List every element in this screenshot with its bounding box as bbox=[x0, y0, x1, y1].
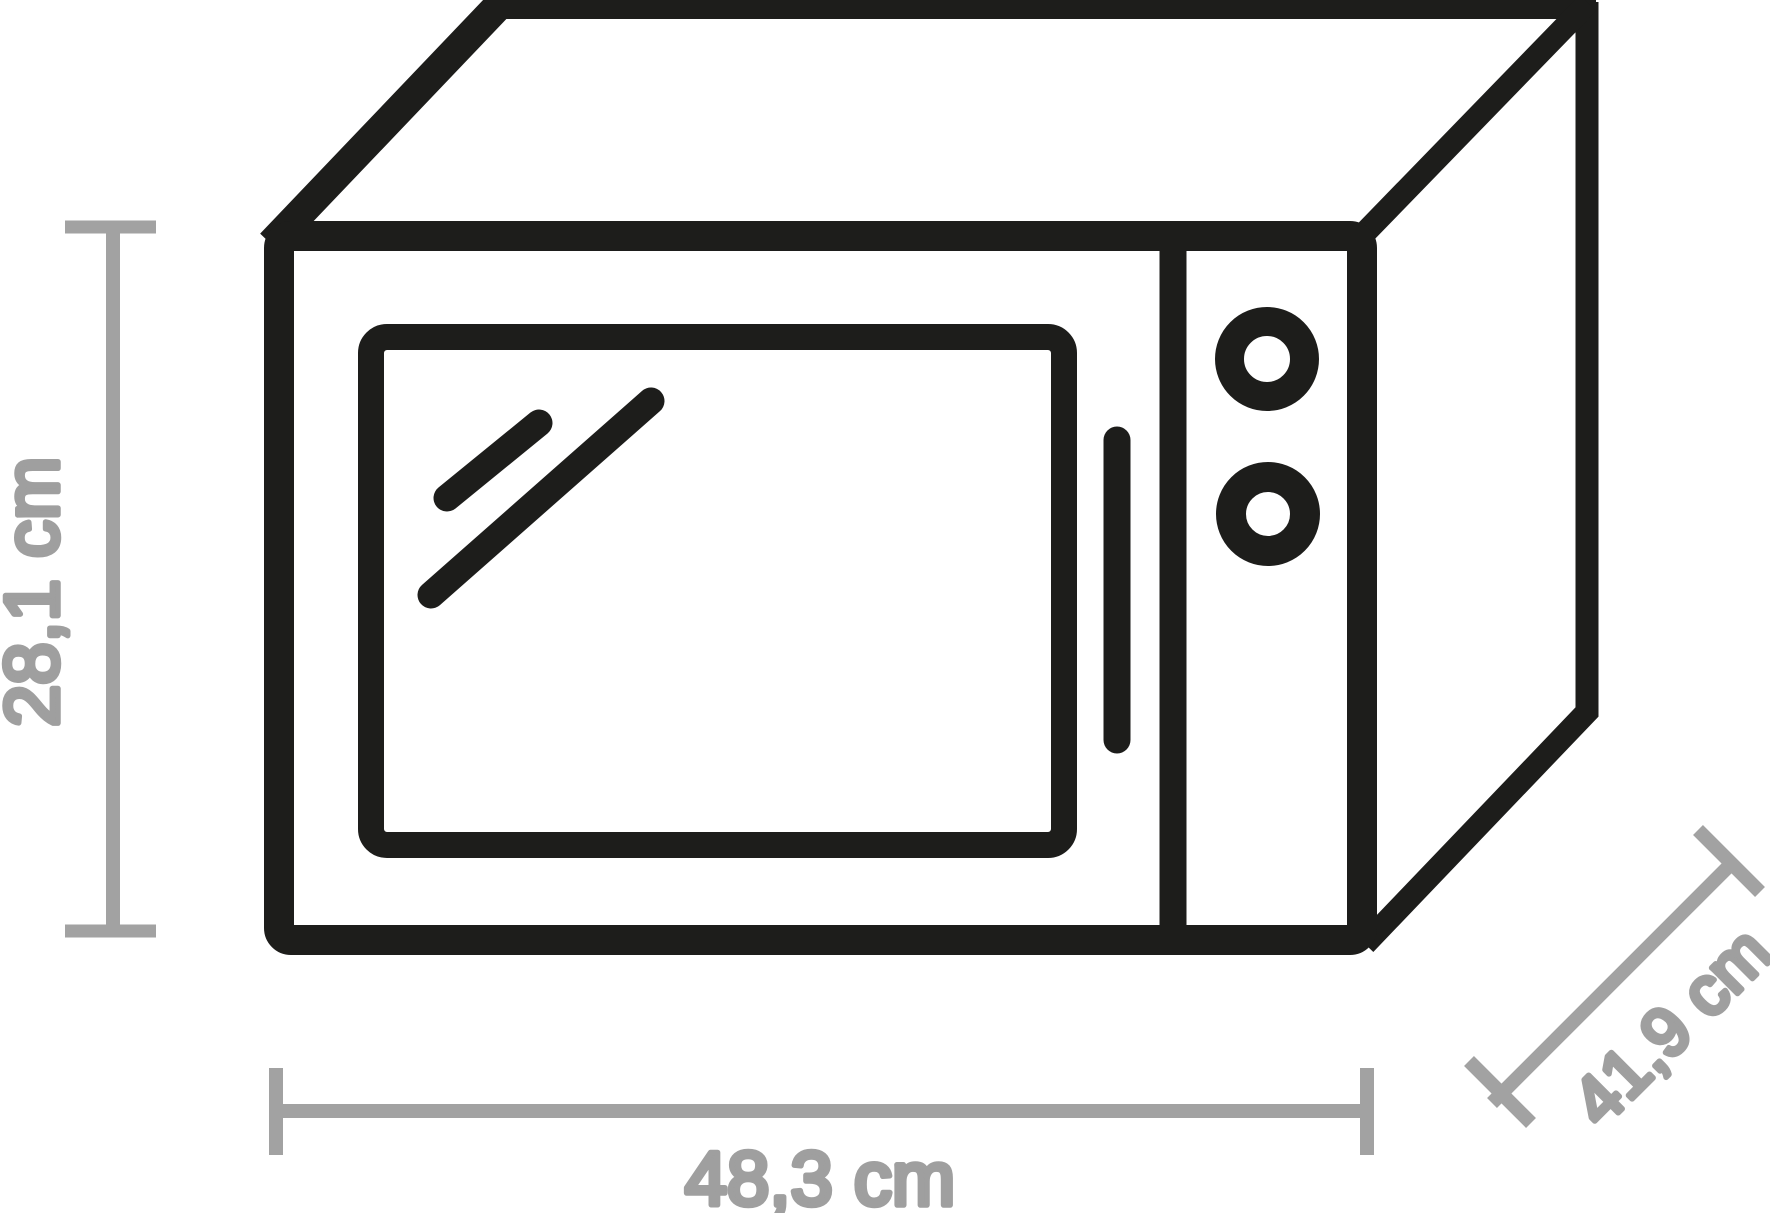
svg-text:41,9 cm: 41,9 cm bbox=[1557, 912, 1770, 1140]
svg-text:48,3 cm: 48,3 cm bbox=[685, 1137, 955, 1213]
svg-text:28,1 cm: 28,1 cm bbox=[0, 457, 75, 727]
